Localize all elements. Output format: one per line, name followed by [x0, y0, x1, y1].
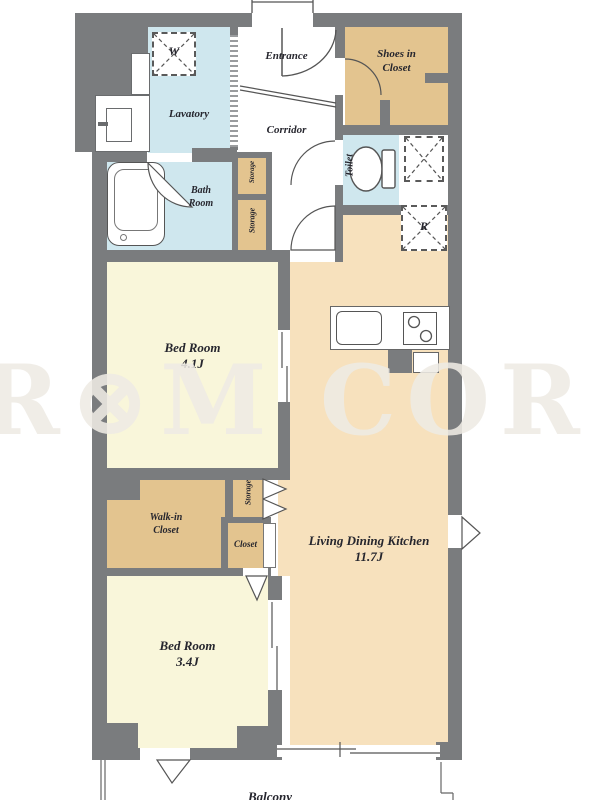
entry-step-lines: [240, 86, 336, 107]
storage-lower-label: Storage: [248, 196, 257, 246]
wic-line2: Closet: [153, 525, 179, 536]
pipe-space-x-lines: [406, 138, 442, 180]
ldk-side-window-flap: [462, 517, 480, 549]
storage-mid-label: Storage: [244, 468, 253, 518]
bedroom1-name: Bed Room: [165, 340, 221, 355]
bedroom2-sliding-lines: [272, 602, 277, 690]
corridor-label: Corridor: [238, 124, 335, 138]
bathroom-line1: Bath: [191, 185, 211, 196]
toilet-label: Toilet: [345, 146, 356, 186]
wic-label: Walk-in Closet: [107, 512, 225, 537]
bathroom-label: Bath Room: [168, 185, 234, 210]
bedroom1-label: Bed Room 4.1J: [107, 340, 278, 373]
balcony-label: Balcony: [200, 789, 340, 800]
shoes-closet-line2: Closet: [382, 62, 410, 74]
wic-line1: Walk-in: [150, 512, 183, 523]
toilet-tank-icon: [382, 150, 395, 188]
toilet-door-arc: [291, 141, 335, 185]
bedroom1-sliding-lines: [282, 332, 287, 402]
bedroom2-label: Bed Room 3.4J: [107, 638, 268, 671]
burner-icon: [421, 331, 432, 342]
shoes-closet-line1: Shoes in: [377, 48, 416, 60]
fridge-symbol: R: [401, 219, 447, 234]
balcony-sliding-window-lines: [277, 742, 440, 757]
bathroom-line2: Room: [189, 198, 213, 209]
storage-upper-label: Storage: [248, 147, 256, 197]
closet-label: Closet: [228, 539, 263, 550]
plan-linework: [0, 0, 600, 800]
lavatory-label: Lavatory: [148, 108, 230, 122]
washer-symbol: W: [152, 44, 196, 59]
bedroom2-size: 3.4J: [176, 654, 199, 669]
shoes-closet-label: Shoes in Closet: [345, 48, 448, 76]
ldk-label: Living Dining Kitchen 11.7J: [290, 533, 448, 566]
bedroom2-door-flap: [246, 576, 267, 600]
porch-outline: [252, 0, 313, 13]
entrance-label: Entrance: [238, 50, 335, 64]
burner-icon: [409, 317, 420, 328]
storage-bifold-door: [263, 479, 286, 519]
ldk-door-arc: [291, 206, 335, 250]
bedroom2-name: Bed Room: [160, 638, 216, 653]
ldk-name: Living Dining Kitchen: [309, 533, 430, 548]
floor-plan: Lavatory Entrance Corridor Shoes in Clos…: [0, 0, 600, 800]
bedroom1-size: 4.1J: [181, 356, 204, 371]
bedroom2-window-flap: [157, 760, 190, 783]
ldk-size: 11.7J: [355, 549, 384, 564]
